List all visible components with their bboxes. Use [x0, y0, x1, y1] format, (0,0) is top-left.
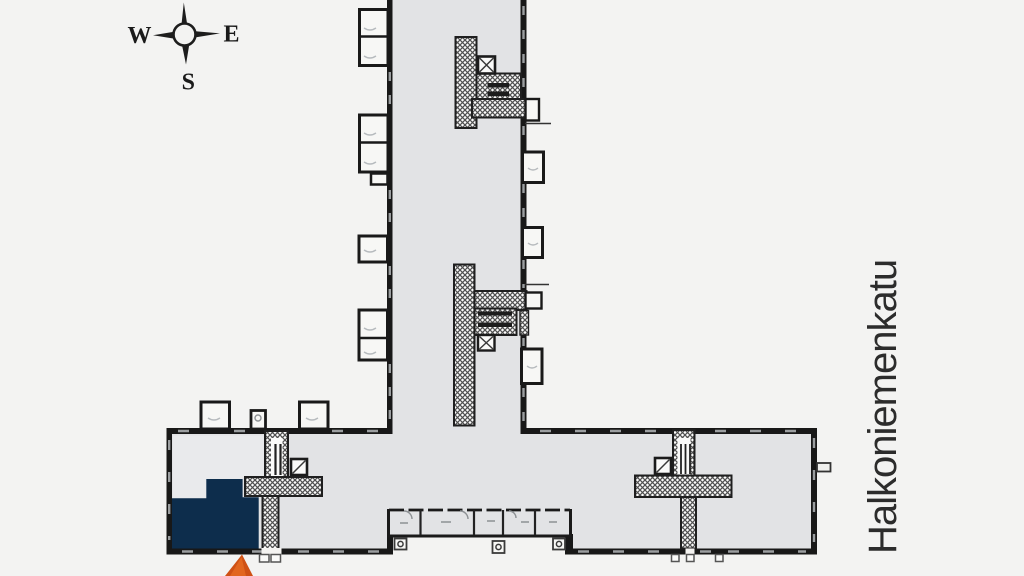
svg-text:E: E	[223, 22, 239, 48]
svg-text:W: W	[128, 23, 152, 49]
svg-text:S: S	[182, 70, 195, 96]
svg-text:Halkoniemenkatu: Halkoniemenkatu	[861, 260, 905, 554]
